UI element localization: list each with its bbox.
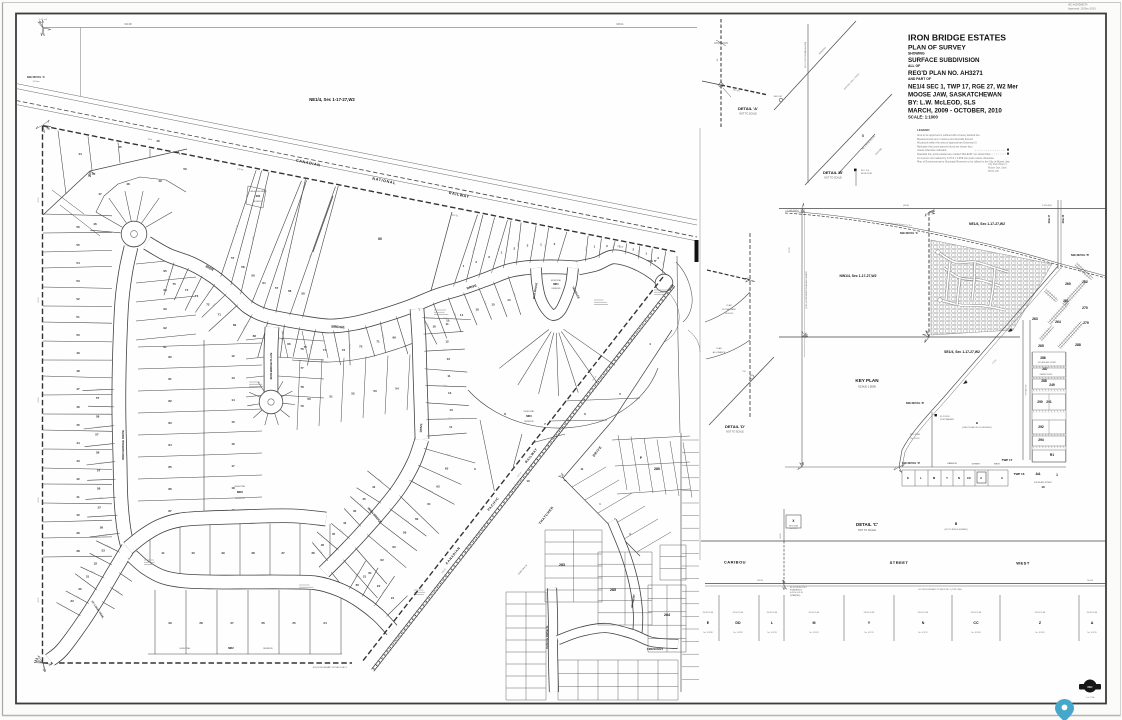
svg-text:MH71-2W: MH71-2W (988, 170, 1000, 173)
svg-text:294: 294 (1038, 438, 1044, 442)
svg-text:MUNICIPAL: MUNICIPAL (551, 279, 561, 282)
svg-text:IRON BRIDGE ESTATES: IRON BRIDGE ESTATES (908, 33, 1006, 43)
svg-text:DD: DD (735, 621, 741, 625)
svg-text:41: 41 (76, 495, 80, 499)
svg-text:50: 50 (307, 397, 311, 401)
svg-text:69: 69 (233, 323, 237, 327)
svg-text:DETAIL 'A': DETAIL 'A' (738, 106, 758, 111)
svg-text:KNOWLAND STREET: KNOWLAND STREET (1034, 481, 1053, 484)
svg-text:1,343 (80C): 1,343 (80C) (1042, 205, 1052, 207)
svg-text:13: 13 (447, 357, 451, 361)
svg-text:51: 51 (76, 315, 80, 319)
svg-text:249: 249 (1049, 383, 1055, 387)
svg-text:78: 78 (300, 385, 304, 389)
svg-text:MARCH, 2009 - OCTOBER, 2010: MARCH, 2009 - OCTOBER, 2010 (908, 108, 1002, 115)
svg-text:60: 60 (378, 237, 382, 241)
svg-text:17: 17 (231, 464, 235, 468)
svg-text:45: 45 (332, 532, 336, 536)
svg-text:MR1: MR1 (553, 282, 559, 286)
svg-text:TWP 17: TWP 17 (1002, 458, 1013, 462)
svg-text:72: 72 (359, 344, 363, 348)
svg-text:279: 279 (1083, 321, 1089, 325)
svg-text:SCALE 1:5000: SCALE 1:5000 (858, 385, 876, 389)
svg-text:140.66: 140.66 (1087, 580, 1093, 582)
svg-text:27: 27 (230, 621, 234, 625)
svg-text:REG PLAN: REG PLAN (910, 433, 921, 436)
svg-text:RGE 26: RGE 26 (1062, 214, 1065, 223)
svg-text:36: 36 (311, 551, 315, 555)
svg-text:ALL OF: ALL OF (908, 64, 920, 68)
svg-text:83: 83 (168, 421, 172, 425)
svg-text:(STAMPED): (STAMPED) (790, 594, 801, 597)
svg-text:84: 84 (168, 443, 172, 447)
svg-text:280: 280 (654, 467, 660, 471)
svg-text:No. 101245: No. 101245 (1035, 632, 1044, 634)
svg-text:BRIDGE: BRIDGE (331, 325, 345, 330)
svg-text:63: 63 (445, 467, 449, 471)
svg-text:52: 52 (76, 297, 80, 301)
svg-text:MUNICIPAL: MUNICIPAL (235, 485, 247, 488)
svg-text:Railroads that cross parcels f: Railroads that cross parcels found are s… (917, 145, 973, 148)
svg-text:32.72: 32.72 (448, 418, 452, 420)
svg-text:CARIBOU: CARIBOU (724, 560, 746, 565)
svg-text:No. 101288: No. 101288 (703, 632, 712, 634)
svg-text:46: 46 (76, 405, 80, 409)
svg-text:NOT TO SCALE: NOT TO SCALE (858, 529, 877, 532)
svg-text:288: 288 (1041, 379, 1047, 383)
svg-text:92: 92 (163, 326, 167, 330)
svg-text:16: 16 (475, 307, 479, 311)
svg-text:No. 101233: No. 101233 (767, 632, 776, 634)
svg-text:AND PART OF: AND PART OF (908, 77, 931, 81)
svg-text:62: 62 (436, 485, 440, 489)
svg-text:SEE DET: SEE DET (774, 96, 783, 98)
svg-text:40: 40 (191, 551, 195, 555)
svg-text:PLAN: PLAN (716, 347, 722, 350)
svg-text:REGD PLAN: REGD PLAN (864, 611, 875, 614)
svg-text:20.19: 20.19 (97, 389, 101, 391)
svg-text:48: 48 (126, 182, 130, 186)
svg-text:80: 80 (168, 355, 172, 359)
svg-text:CARIBOU: CARIBOU (947, 462, 957, 465)
svg-text:FLORAL PARK: FLORAL PARK (722, 308, 736, 311)
svg-text:61: 61 (368, 571, 372, 575)
svg-text:288: 288 (1075, 343, 1081, 347)
svg-text:29: 29 (168, 621, 172, 625)
svg-text:22: 22 (377, 584, 381, 588)
svg-text:54: 54 (395, 386, 399, 390)
svg-text:21: 21 (363, 575, 367, 579)
svg-text:ISC: ISC (1087, 685, 1093, 689)
svg-text:WEST: WEST (994, 464, 1001, 466)
svg-text:11: 11 (447, 374, 451, 378)
svg-text:Measurements are in metres and: Measurements are in metres and decimals … (917, 138, 973, 141)
svg-text:40: 40 (76, 513, 80, 517)
svg-text:58: 58 (241, 265, 245, 269)
svg-text:58: 58 (96, 414, 100, 418)
svg-text:50: 50 (76, 333, 80, 337)
svg-text:RESERVE: RESERVE (263, 648, 273, 650)
svg-text:44: 44 (78, 152, 82, 156)
svg-text:61: 61 (262, 281, 266, 285)
svg-text:No. 101289: No. 101289 (733, 632, 742, 634)
svg-text:45: 45 (362, 497, 366, 501)
svg-text:49: 49 (76, 351, 80, 355)
svg-text:33: 33 (78, 587, 82, 591)
svg-text:21: 21 (391, 596, 395, 600)
svg-text:57: 57 (95, 433, 99, 437)
svg-text:N: N (958, 476, 960, 480)
svg-text:ALLOWANCE: ALLOWANCE (713, 351, 726, 354)
svg-text:56: 56 (76, 225, 80, 229)
svg-text:REGD PLAN: REGD PLAN (1035, 611, 1046, 614)
svg-text:REGD PLAN: REGD PLAN (918, 611, 929, 614)
svg-text:53: 53 (76, 279, 80, 283)
svg-text:11.31: 11.31 (442, 349, 446, 351)
svg-text:R1: R1 (1050, 453, 1054, 457)
svg-text:RESERVE: RESERVE (235, 498, 245, 500)
svg-text:No. 101243: No. 101243 (809, 632, 818, 634)
svg-text:SUTHERLAND STREET: SUTHERLAND STREET (1038, 361, 1057, 364)
svg-text:LEGEND: LEGEND (917, 128, 930, 132)
svg-text:10: 10 (526, 479, 530, 483)
svg-text:46: 46 (93, 222, 97, 226)
svg-text:ISC #103368274: ISC #103368274 (1068, 3, 1088, 7)
svg-text:37: 37 (281, 551, 285, 555)
svg-text:Moose Jaw, Sask: Moose Jaw, Sask (988, 167, 1007, 170)
svg-text:NOT TO SCALE: NOT TO SCALE (726, 431, 744, 434)
svg-text:IRON BRIDGE DRIVE: IRON BRIDGE DRIVE (121, 430, 125, 460)
svg-text:Standard iron posts planted ar: Standard iron posts planted are marked '… (917, 153, 991, 156)
svg-text:54.30: 54.30 (38, 297, 40, 303)
svg-text:57: 57 (231, 256, 235, 260)
svg-text:A: A (1001, 476, 1003, 480)
svg-text:66.00: 66.00 (780, 534, 782, 539)
svg-text:82: 82 (168, 399, 172, 403)
svg-text:SURFACE SUBDIVISION: SURFACE SUBDIVISION (908, 57, 980, 64)
svg-text:58: 58 (100, 526, 104, 530)
svg-text:42: 42 (76, 477, 80, 481)
svg-text:Approved: 15-Dec-2010: Approved: 15-Dec-2010 (1068, 7, 1096, 11)
svg-text:93: 93 (163, 307, 167, 311)
svg-text:14: 14 (231, 398, 235, 402)
svg-text:47: 47 (98, 192, 102, 196)
svg-text:All parcels within the area of: All parcels within the area of approval … (917, 142, 977, 145)
svg-text:16: 16 (231, 442, 235, 446)
svg-text:38: 38 (251, 551, 255, 555)
svg-text:REGD PLAN: REGD PLAN (971, 611, 982, 614)
svg-text:(FRACTIONAL SE 1/4 UNSUBDIV): (FRACTIONAL SE 1/4 UNSUBDIV) (962, 426, 992, 429)
svg-text:31: 31 (86, 574, 90, 578)
svg-text:290: 290 (1037, 400, 1043, 404)
svg-text:44: 44 (76, 441, 80, 445)
svg-text:53: 53 (373, 389, 377, 393)
svg-text:DRIVE: DRIVE (419, 423, 423, 432)
svg-text:71: 71 (218, 313, 222, 317)
svg-text:52: 52 (351, 392, 355, 396)
svg-text:(MILE): (MILE) (903, 205, 909, 207)
svg-text:47: 47 (76, 387, 80, 391)
svg-text:No. 101274: No. 101274 (918, 632, 927, 634)
svg-text:2.0 km: 2.0 km (33, 81, 40, 83)
svg-text:14: 14 (507, 298, 511, 302)
svg-text:NOT TO SCALE: NOT TO SCALE (739, 113, 757, 116)
svg-text:25: 25 (292, 621, 296, 625)
svg-text:64 YD: 64 YD (789, 247, 791, 253)
svg-text:(NOT PLAYED A NUMBER): (NOT PLAYED A NUMBER) (944, 528, 968, 531)
svg-text:CC: CC (967, 476, 971, 480)
svg-text:1 of 1 Mb: 1 of 1 Mb (1085, 697, 1095, 699)
svg-text:MR2: MR2 (237, 490, 243, 494)
svg-text:264: 264 (1055, 320, 1061, 324)
svg-text:SCALE: 1:1000: SCALE: 1:1000 (908, 115, 938, 120)
svg-text:No. 101219: No. 101219 (1087, 632, 1096, 634)
svg-text:54: 54 (76, 261, 80, 265)
svg-text:46: 46 (353, 509, 357, 513)
svg-text:59: 59 (251, 274, 255, 278)
svg-text:44: 44 (372, 485, 376, 489)
svg-text:263: 263 (1032, 317, 1038, 321)
svg-text:City Park West of: City Park West of (988, 163, 1007, 166)
svg-text:MUNICIPAL: MUNICIPAL (180, 647, 192, 650)
svg-text:265: 265 (1038, 344, 1044, 348)
svg-text:SOUTH BOUNDARY OF SE1/4 SEC 1: SOUTH BOUNDARY OF SE1/4 SEC 1 (TWP LINE) (918, 588, 962, 591)
svg-text:81: 81 (168, 377, 172, 381)
svg-text:55.10: 55.10 (38, 197, 40, 203)
svg-text:9TH AVE SW: 9TH AVE SW (1025, 384, 1028, 395)
svg-text:MOOSE JAW, SASKATCHEWAN: MOOSE JAW, SASKATCHEWAN (908, 92, 1002, 99)
svg-text:28: 28 (199, 621, 203, 625)
svg-text:L: L (920, 476, 922, 480)
svg-text:12: 12 (231, 354, 235, 358)
svg-text:REG'D PLAN NO. AH3271: REG'D PLAN NO. AH3271 (908, 70, 983, 77)
svg-text:No. 11203: No. 11203 (910, 438, 920, 440)
svg-text:REGD PLAN: REGD PLAN (809, 611, 820, 614)
svg-text:14: 14 (460, 313, 464, 317)
svg-text:32: 32 (70, 599, 74, 603)
svg-text:1-21 mk: 1-21 mk (39, 19, 48, 21)
svg-text:E: E (907, 476, 909, 480)
svg-text:REGD PLAN: REGD PLAN (703, 611, 714, 614)
svg-text:Y: Y (946, 476, 948, 480)
svg-text:58: 58 (288, 289, 292, 293)
svg-text:50: 50 (183, 167, 187, 171)
svg-text:95: 95 (163, 269, 167, 273)
svg-text:SE1/4, Sec 1-17-27,W2: SE1/4, Sec 1-17-27,W2 (944, 350, 980, 354)
svg-text:REGD PLAN: REGD PLAN (767, 611, 778, 614)
svg-text:N: N (922, 621, 925, 625)
svg-text:NE1/4, Sec 1-17-27,W2: NE1/4, Sec 1-17-27,W2 (969, 222, 1005, 226)
svg-text:PLAN OF SURVEY: PLAN OF SURVEY (908, 45, 966, 52)
svg-text:unless otherwise indicated: unless otherwise indicated (917, 149, 947, 152)
svg-text:No 12137: No 12137 (790, 528, 798, 530)
svg-text:SHOWING: SHOWING (908, 52, 925, 56)
svg-text:A: A (1091, 621, 1094, 625)
svg-text:59: 59 (403, 531, 407, 535)
svg-text:SEE DETAIL 'A': SEE DETAIL 'A' (27, 76, 46, 79)
svg-text:DETAIL 'B': DETAIL 'B' (823, 170, 843, 175)
svg-text:11: 11 (446, 322, 450, 326)
svg-text:REGD PLAN: REGD PLAN (1087, 611, 1098, 614)
svg-text:26: 26 (261, 621, 265, 625)
svg-text:55: 55 (76, 243, 80, 247)
svg-text:59: 59 (301, 291, 305, 295)
svg-text:57: 57 (97, 469, 101, 473)
svg-text:M: M (813, 621, 816, 625)
svg-text:63: 63 (392, 545, 396, 549)
svg-text:BY: L.W. McLEOD, SLS: BY: L.W. McLEOD, SLS (908, 100, 976, 107)
svg-text:72: 72 (206, 302, 210, 306)
svg-text:KEY PLAN: KEY PLAN (855, 378, 879, 383)
svg-text:292: 292 (1038, 425, 1044, 429)
svg-text:52.64: 52.64 (38, 397, 40, 403)
svg-text:648.11: 648.11 (616, 23, 624, 26)
svg-text:92-MJ-10: 92-MJ-10 (725, 313, 734, 315)
svg-text:SEE DETAIL 'B': SEE DETAIL 'B' (1071, 254, 1090, 257)
svg-text:POST MARKER: POST MARKER (940, 418, 954, 421)
svg-text:STREET: STREET (890, 560, 909, 565)
svg-text:FD 1 1/4: FD 1 1/4 (861, 170, 870, 172)
svg-text:45: 45 (118, 145, 122, 149)
svg-text:38: 38 (76, 549, 80, 553)
svg-text:44: 44 (343, 521, 347, 525)
svg-text:33: 33 (101, 549, 105, 553)
svg-text:IRON BRIDGE PLACE: IRON BRIDGE PLACE (269, 352, 273, 379)
svg-text:RGE 27: RGE 27 (1048, 214, 1051, 223)
svg-text:No. 101276: No. 101276 (864, 632, 873, 634)
svg-text:16: 16 (433, 325, 437, 329)
svg-text:MR3: MR3 (526, 414, 532, 418)
svg-text:270: 270 (1082, 306, 1088, 310)
svg-text:51: 51 (329, 394, 333, 398)
svg-text:(20.12 GOVT ROAD ALLOW): (20.12 GOVT ROAD ALLOW) (804, 42, 807, 69)
svg-text:94: 94 (163, 288, 167, 292)
svg-text:1: 1 (1056, 473, 1058, 477)
svg-text:32: 32 (94, 562, 98, 566)
svg-text:NW1/4, Sec 1-17-27,W2: NW1/4, Sec 1-17-27,W2 (840, 274, 877, 278)
svg-text:46: 46 (156, 139, 160, 143)
svg-text:15: 15 (231, 420, 235, 424)
svg-text:DETAIL 'C': DETAIL 'C' (856, 522, 878, 527)
svg-text:24.46: 24.46 (443, 385, 447, 387)
svg-text:49: 49 (158, 179, 162, 183)
svg-text:27.78: 27.78 (638, 250, 640, 254)
svg-text:60: 60 (356, 583, 360, 587)
svg-text:Area to be approved is outline: Area to be approved is outlined with a h… (917, 134, 980, 137)
svg-text:Lot corners not marked by S.I.: Lot corners not marked by S.I.P.S x 0.45… (917, 157, 995, 160)
svg-text:PARKER DRIVE: PARKER DRIVE (1040, 373, 1053, 376)
svg-text:286: 286 (1040, 356, 1046, 360)
svg-text:62: 62 (380, 558, 384, 562)
svg-text:73: 73 (342, 348, 346, 352)
svg-text:SEE DETAIL 'A': SEE DETAIL 'A' (900, 232, 919, 235)
svg-text:283: 283 (559, 563, 565, 567)
svg-text:24: 24 (323, 621, 327, 625)
svg-text:NOT TO SCALE: NOT TO SCALE (824, 177, 842, 180)
svg-text:39.40: 39.40 (443, 318, 447, 320)
svg-text:CC: CC (973, 621, 979, 625)
svg-text:41: 41 (161, 551, 165, 555)
svg-text:PLAN: PLAN (726, 304, 732, 307)
svg-text:61: 61 (427, 502, 431, 506)
svg-text:43: 43 (76, 459, 80, 463)
svg-text:PLAN AH3271: PLAN AH3271 (790, 589, 802, 592)
svg-text:RESERVE: RESERVE (524, 421, 534, 423)
svg-text:PASCOE DRIVE W.: PASCOE DRIVE W. (545, 625, 549, 648)
svg-text:WEST: WEST (1016, 561, 1030, 566)
svg-text:11: 11 (449, 425, 453, 429)
svg-text:FD 2 IRON: FD 2 IRON (940, 416, 950, 418)
svg-text:13: 13 (231, 376, 235, 380)
svg-text:60: 60 (415, 517, 419, 521)
svg-text:57: 57 (96, 396, 100, 400)
svg-text:86: 86 (168, 487, 172, 491)
svg-text:39: 39 (221, 551, 225, 555)
svg-text:75: 75 (173, 282, 177, 286)
svg-text:79: 79 (300, 404, 304, 408)
svg-text:48: 48 (76, 369, 80, 373)
svg-text:TWP 16: TWP 16 (1014, 472, 1025, 476)
svg-text:91: 91 (163, 345, 167, 349)
svg-text:285: 285 (610, 588, 616, 592)
svg-text:87: 87 (168, 509, 172, 513)
svg-text:STREET: STREET (972, 464, 981, 466)
svg-text:AA: AA (1036, 472, 1041, 476)
svg-text:10: 10 (1041, 485, 1045, 489)
svg-text:12: 12 (448, 391, 452, 395)
svg-text:SOUTH BOUNDARY OF NE1/4 SEC 1: SOUTH BOUNDARY OF NE1/4 SEC 1 (313, 666, 348, 669)
svg-text:NE1/4 SEC 1, TWP 17, RGE 27, W: NE1/4 SEC 1, TWP 17, RGE 27, W2 Mer (908, 85, 1019, 91)
svg-text:69: 69 (393, 336, 397, 340)
svg-text:1,344 (80CH): 1,344 (80CH) (787, 210, 799, 212)
svg-text:58: 58 (96, 451, 100, 455)
svg-text:SEE DETAIL 'B': SEE DETAIL 'B' (906, 402, 925, 405)
svg-text:15: 15 (492, 302, 496, 306)
svg-text:RESERVE: RESERVE (551, 288, 561, 290)
svg-text:40.45: 40.45 (38, 497, 40, 503)
svg-text:SEE DETAIL 'D': SEE DETAIL 'D' (902, 462, 921, 465)
svg-text:57: 57 (98, 505, 102, 509)
svg-text:35.93: 35.93 (99, 497, 103, 499)
svg-text:CRESCENT: CRESCENT (647, 647, 664, 651)
svg-text:(9 YD) GOVERNMENT ROAD ALLOWAN: (9 YD) GOVERNMENT ROAD ALLOWANCE (805, 270, 808, 308)
svg-text:281: 281 (256, 194, 261, 198)
svg-text:39: 39 (76, 531, 80, 535)
svg-text:58: 58 (97, 487, 101, 491)
svg-text:71: 71 (376, 340, 380, 344)
svg-text:640.08: 640.08 (124, 23, 132, 26)
svg-text:DETAIL 'D': DETAIL 'D' (725, 424, 745, 429)
svg-text:68: 68 (253, 334, 257, 338)
svg-text:66: 66 (287, 342, 291, 346)
svg-text:46: 46 (321, 543, 325, 547)
svg-text:146.83: 146.83 (757, 580, 763, 582)
svg-text:IRON POST: IRON POST (861, 173, 873, 175)
svg-text:RESERVE: RESERVE (253, 201, 263, 203)
svg-text:284: 284 (664, 613, 670, 617)
svg-text:76: 76 (300, 347, 304, 351)
svg-text:26.87: 26.87 (348, 344, 350, 348)
svg-text:74: 74 (185, 288, 189, 292)
svg-text:57: 57 (275, 286, 279, 290)
svg-text:NE1/4, Sec 1-17-27,W2: NE1/4, Sec 1-17-27,W2 (309, 97, 355, 102)
svg-text:34.37: 34.37 (38, 597, 40, 603)
svg-text:11: 11 (580, 467, 584, 471)
svg-text:MUNICIPAL: MUNICIPAL (524, 410, 536, 413)
svg-text:13: 13 (449, 408, 453, 412)
svg-text:MR2: MR2 (228, 646, 234, 650)
svg-text:77: 77 (300, 366, 304, 370)
